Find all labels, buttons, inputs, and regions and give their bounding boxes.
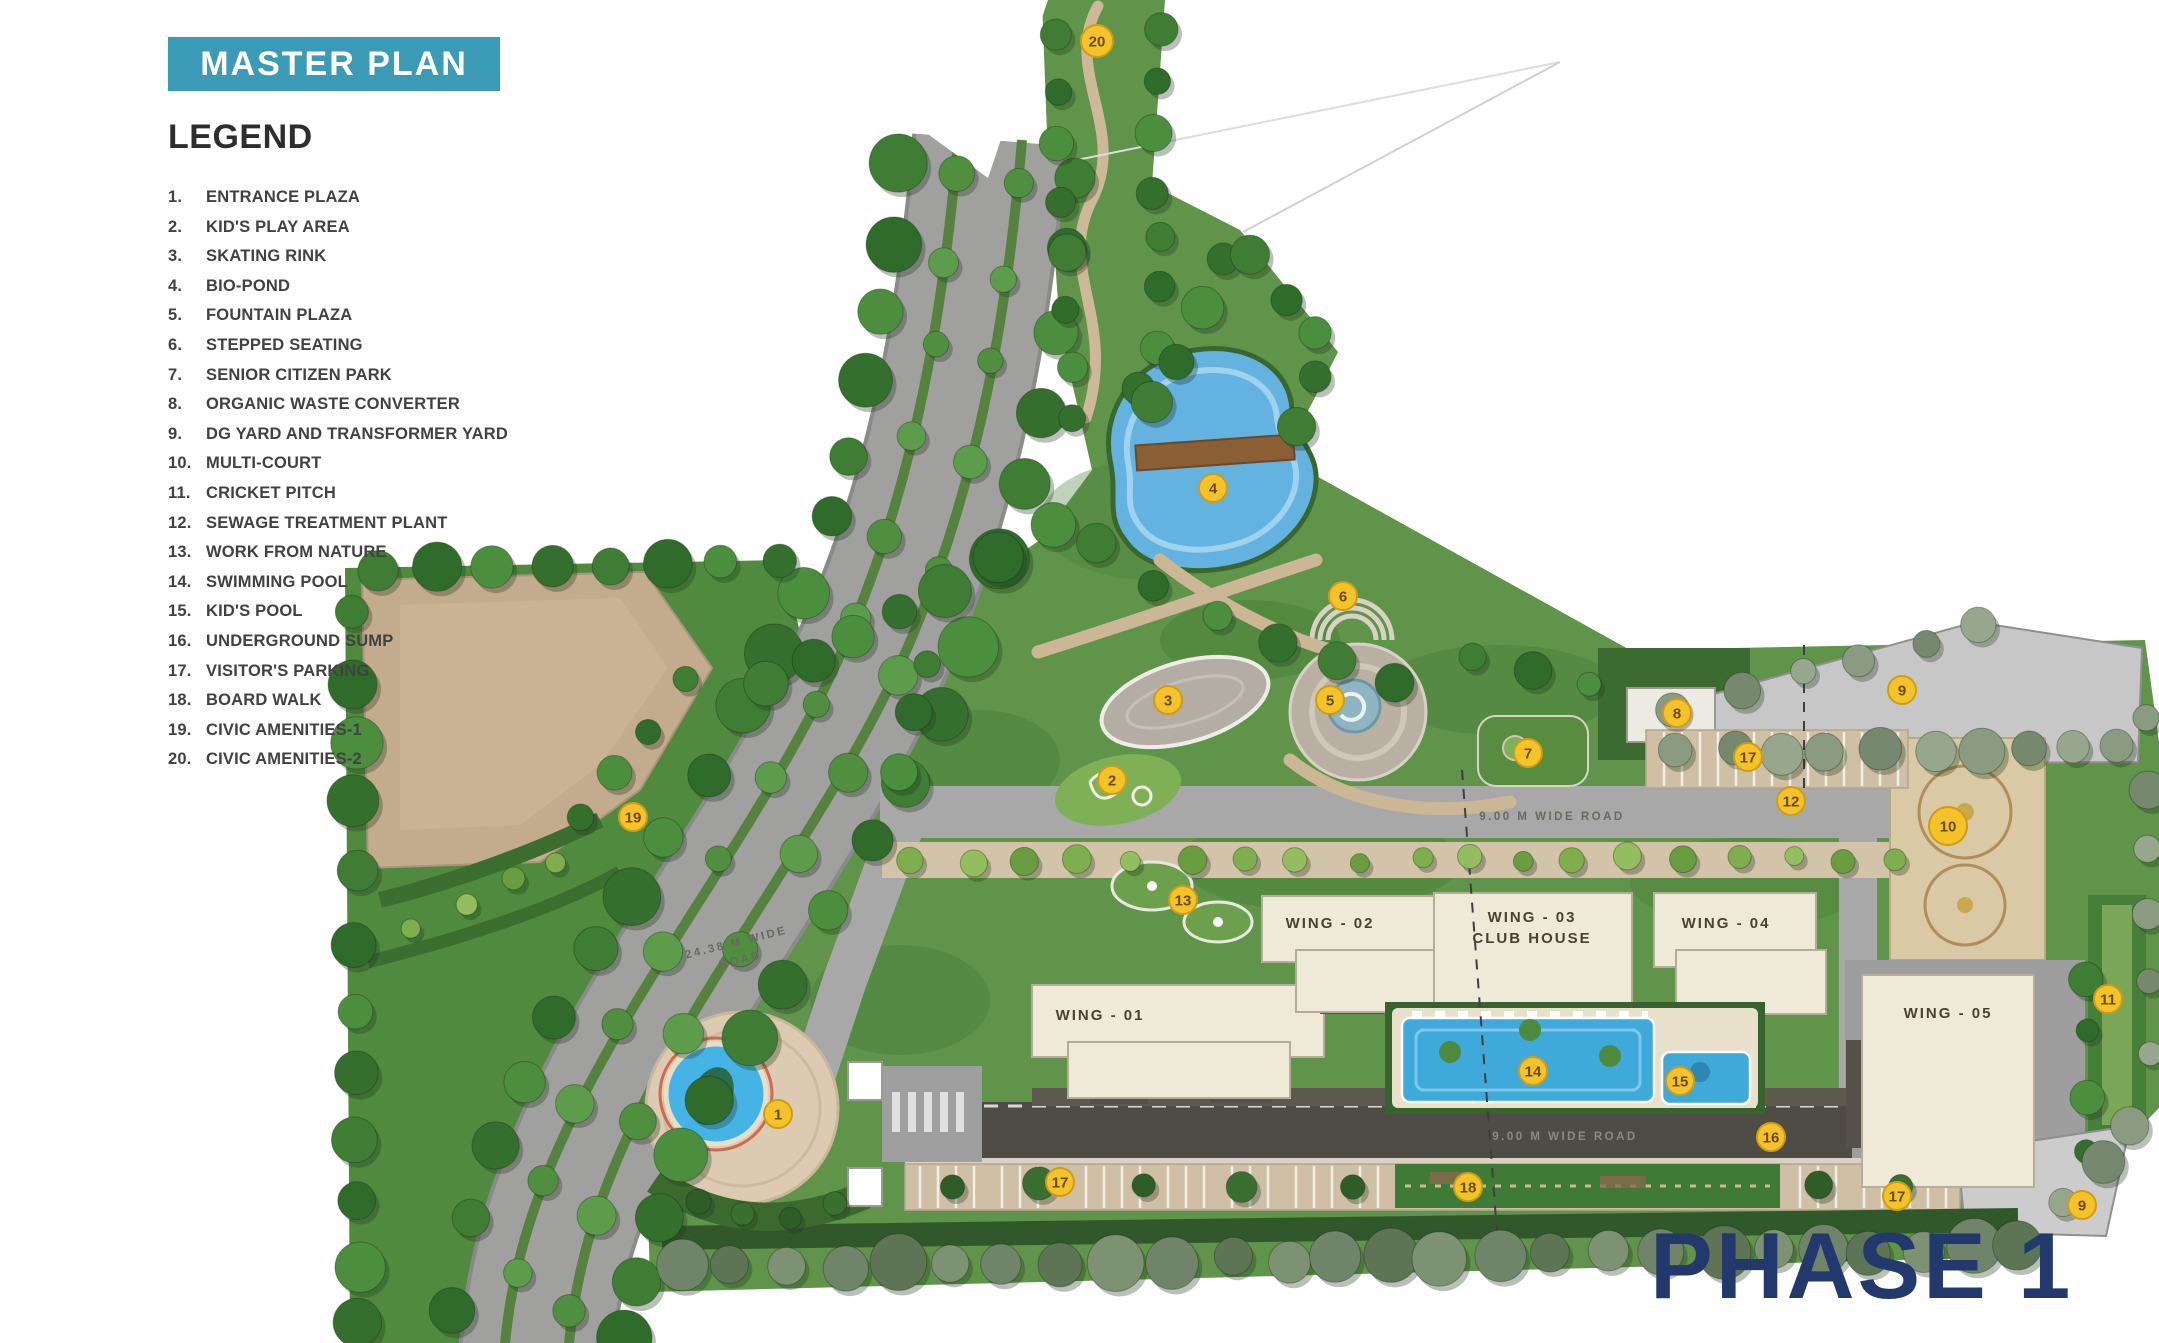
legend-item: 7.SENIOR CITIZEN PARK [168, 361, 598, 391]
svg-text:10: 10 [1940, 818, 1957, 835]
map-marker-8: 8 [1663, 699, 1691, 727]
legend-item-number: 18. [168, 686, 206, 716]
map-marker-10: 10 [1929, 807, 1967, 845]
svg-text:1: 1 [774, 1106, 782, 1123]
map-marker-6: 6 [1329, 582, 1357, 610]
phase-label: PHASE 1 [1650, 1212, 2073, 1320]
legend-item-number: 13. [168, 538, 206, 568]
legend-item-number: 19. [168, 716, 206, 746]
svg-text:17: 17 [1889, 1188, 1906, 1205]
legend-heading: LEGEND [168, 118, 598, 157]
map-marker-14: 14 [1519, 1057, 1547, 1085]
legend-item-label: CIVIC AMENITIES-2 [206, 745, 362, 775]
legend-item-number: 8. [168, 390, 206, 420]
board-walk [1395, 1164, 1780, 1208]
legend-item-label: WORK FROM NATURE [206, 538, 387, 568]
legend-item-label: SWIMMING POOL [206, 568, 348, 598]
legend-item-number: 10. [168, 449, 206, 479]
legend-item-label: KID'S POOL [206, 597, 303, 627]
map-marker-11: 11 [2094, 985, 2122, 1013]
legend-item-number: 6. [168, 331, 206, 361]
svg-text:15: 15 [1672, 1073, 1689, 1090]
legend-item-number: 9. [168, 420, 206, 450]
legend-item: 11.CRICKET PITCH [168, 479, 598, 509]
master-plan-title: MASTER PLAN [200, 45, 468, 84]
legend-item-label: DG YARD AND TRANSFORMER YARD [206, 420, 508, 450]
pool-area [1385, 1002, 1765, 1114]
legend-item: 3.SKATING RINK [168, 242, 598, 272]
legend-item: 2.KID'S PLAY AREA [168, 213, 598, 243]
legend-item-number: 4. [168, 272, 206, 302]
legend-list: 1.ENTRANCE PLAZA2.KID'S PLAY AREA3.SKATI… [168, 183, 598, 775]
legend-item-label: SENIOR CITIZEN PARK [206, 361, 392, 391]
road-label: 9.00 M WIDE ROAD [1479, 811, 1624, 823]
svg-text:19: 19 [625, 809, 642, 826]
road-label: 9.00 M WIDE ROAD [1492, 1131, 1637, 1143]
svg-text:6: 6 [1339, 588, 1347, 605]
svg-text:16: 16 [1763, 1129, 1780, 1146]
legend-item-number: 7. [168, 361, 206, 391]
map-marker-13: 13 [1169, 886, 1197, 914]
master-plan-page: 24.38 M WIDEROAD9.00 M WIDE ROAD9.00 M W… [0, 0, 2159, 1343]
map-marker-20: 20 [1081, 25, 1113, 57]
legend-item-label: VISITOR'S PARKING [206, 657, 370, 687]
wing-label: WING - 04 [1682, 915, 1771, 932]
legend-item-number: 17. [168, 657, 206, 687]
building-wing-01 [1032, 985, 1324, 1104]
legend-item-label: KID'S PLAY AREA [206, 213, 350, 243]
map-marker-19: 19 [619, 803, 647, 831]
legend-item: 10.MULTI-COURT [168, 449, 598, 479]
legend-item-number: 14. [168, 568, 206, 598]
svg-text:8: 8 [1673, 705, 1681, 722]
svg-text:20: 20 [1089, 33, 1106, 50]
svg-text:18: 18 [1460, 1179, 1477, 1196]
map-marker-2: 2 [1098, 766, 1126, 794]
map-marker-9: 9 [1888, 676, 1916, 704]
map-marker-12: 12 [1777, 787, 1805, 815]
map-marker-15: 15 [1666, 1067, 1694, 1095]
map-marker-17: 17 [1046, 1168, 1074, 1196]
boundary-line-2 [1243, 62, 1560, 232]
legend-item-number: 5. [168, 301, 206, 331]
map-marker-5: 5 [1316, 686, 1344, 714]
legend-item-number: 12. [168, 509, 206, 539]
legend-item: 15.KID'S POOL [168, 597, 598, 627]
map-marker-17: 17 [1734, 743, 1762, 771]
legend-item-label: SKATING RINK [206, 242, 326, 272]
svg-text:17: 17 [1740, 749, 1757, 766]
legend-item-label: CRICKET PITCH [206, 479, 336, 509]
legend-item-number: 15. [168, 597, 206, 627]
map-marker-3: 3 [1154, 686, 1182, 714]
building-wing-04 [1654, 893, 1826, 1014]
legend-item: 9.DG YARD AND TRANSFORMER YARD [168, 420, 598, 450]
legend-item-number: 20. [168, 745, 206, 775]
wing-label: WING - 05 [1904, 1005, 1993, 1022]
legend-panel: LEGEND 1.ENTRANCE PLAZA2.KID'S PLAY AREA… [168, 118, 598, 775]
map-marker-18: 18 [1454, 1173, 1482, 1201]
legend-item-number: 11. [168, 479, 206, 509]
legend-item-label: CIVIC AMENITIES-1 [206, 716, 362, 746]
map-marker-17: 17 [1883, 1182, 1911, 1210]
legend-item: 5.FOUNTAIN PLAZA [168, 301, 598, 331]
legend-item: 8.ORGANIC WASTE CONVERTER [168, 390, 598, 420]
legend-item: 12.SEWAGE TREATMENT PLANT [168, 509, 598, 539]
svg-text:5: 5 [1326, 692, 1334, 709]
legend-item: 18.BOARD WALK [168, 686, 598, 716]
svg-text:14: 14 [1525, 1063, 1542, 1080]
svg-text:9: 9 [2078, 1197, 2086, 1214]
legend-item: 19.CIVIC AMENITIES-1 [168, 716, 598, 746]
svg-text:9: 9 [1898, 682, 1906, 699]
wing-label: WING - 01 [1056, 1007, 1145, 1024]
legend-item: 17.VISITOR'S PARKING [168, 657, 598, 687]
legend-item-label: MULTI-COURT [206, 449, 322, 479]
multi-court [1890, 738, 2045, 960]
svg-text:17: 17 [1052, 1174, 1069, 1191]
svg-text:4: 4 [1209, 480, 1218, 497]
legend-item: 20.CIVIC AMENITIES-2 [168, 745, 598, 775]
legend-item: 6.STEPPED SEATING [168, 331, 598, 361]
svg-text:11: 11 [2100, 991, 2116, 1008]
svg-text:7: 7 [1524, 745, 1532, 762]
svg-text:3: 3 [1164, 692, 1172, 709]
svg-text:12: 12 [1783, 793, 1800, 810]
legend-item-label: FOUNTAIN PLAZA [206, 301, 352, 331]
legend-item: 4.BIO-POND [168, 272, 598, 302]
legend-item-label: ENTRANCE PLAZA [206, 183, 360, 213]
svg-text:13: 13 [1175, 892, 1192, 909]
svg-text:2: 2 [1108, 772, 1116, 789]
map-marker-7: 7 [1514, 739, 1542, 767]
wing-label: WING - 02 [1286, 915, 1375, 932]
legend-item-number: 16. [168, 627, 206, 657]
legend-item: 14.SWIMMING POOL [168, 568, 598, 598]
legend-item-number: 2. [168, 213, 206, 243]
legend-item: 13.WORK FROM NATURE [168, 538, 598, 568]
legend-item-number: 3. [168, 242, 206, 272]
legend-item-label: BIO-POND [206, 272, 290, 302]
map-marker-16: 16 [1757, 1123, 1785, 1151]
legend-item-label: ORGANIC WASTE CONVERTER [206, 390, 460, 420]
legend-item: 16.UNDERGROUND SUMP [168, 627, 598, 657]
legend-item-label: SEWAGE TREATMENT PLANT [206, 509, 448, 539]
legend-item-label: BOARD WALK [206, 686, 322, 716]
map-marker-1: 1 [764, 1100, 792, 1128]
legend-item-label: STEPPED SEATING [206, 331, 363, 361]
legend-item: 1.ENTRANCE PLAZA [168, 183, 598, 213]
master-plan-banner: MASTER PLAN [168, 37, 500, 91]
map-marker-4: 4 [1199, 474, 1227, 502]
legend-item-label: UNDERGROUND SUMP [206, 627, 393, 657]
legend-item-number: 1. [168, 183, 206, 213]
